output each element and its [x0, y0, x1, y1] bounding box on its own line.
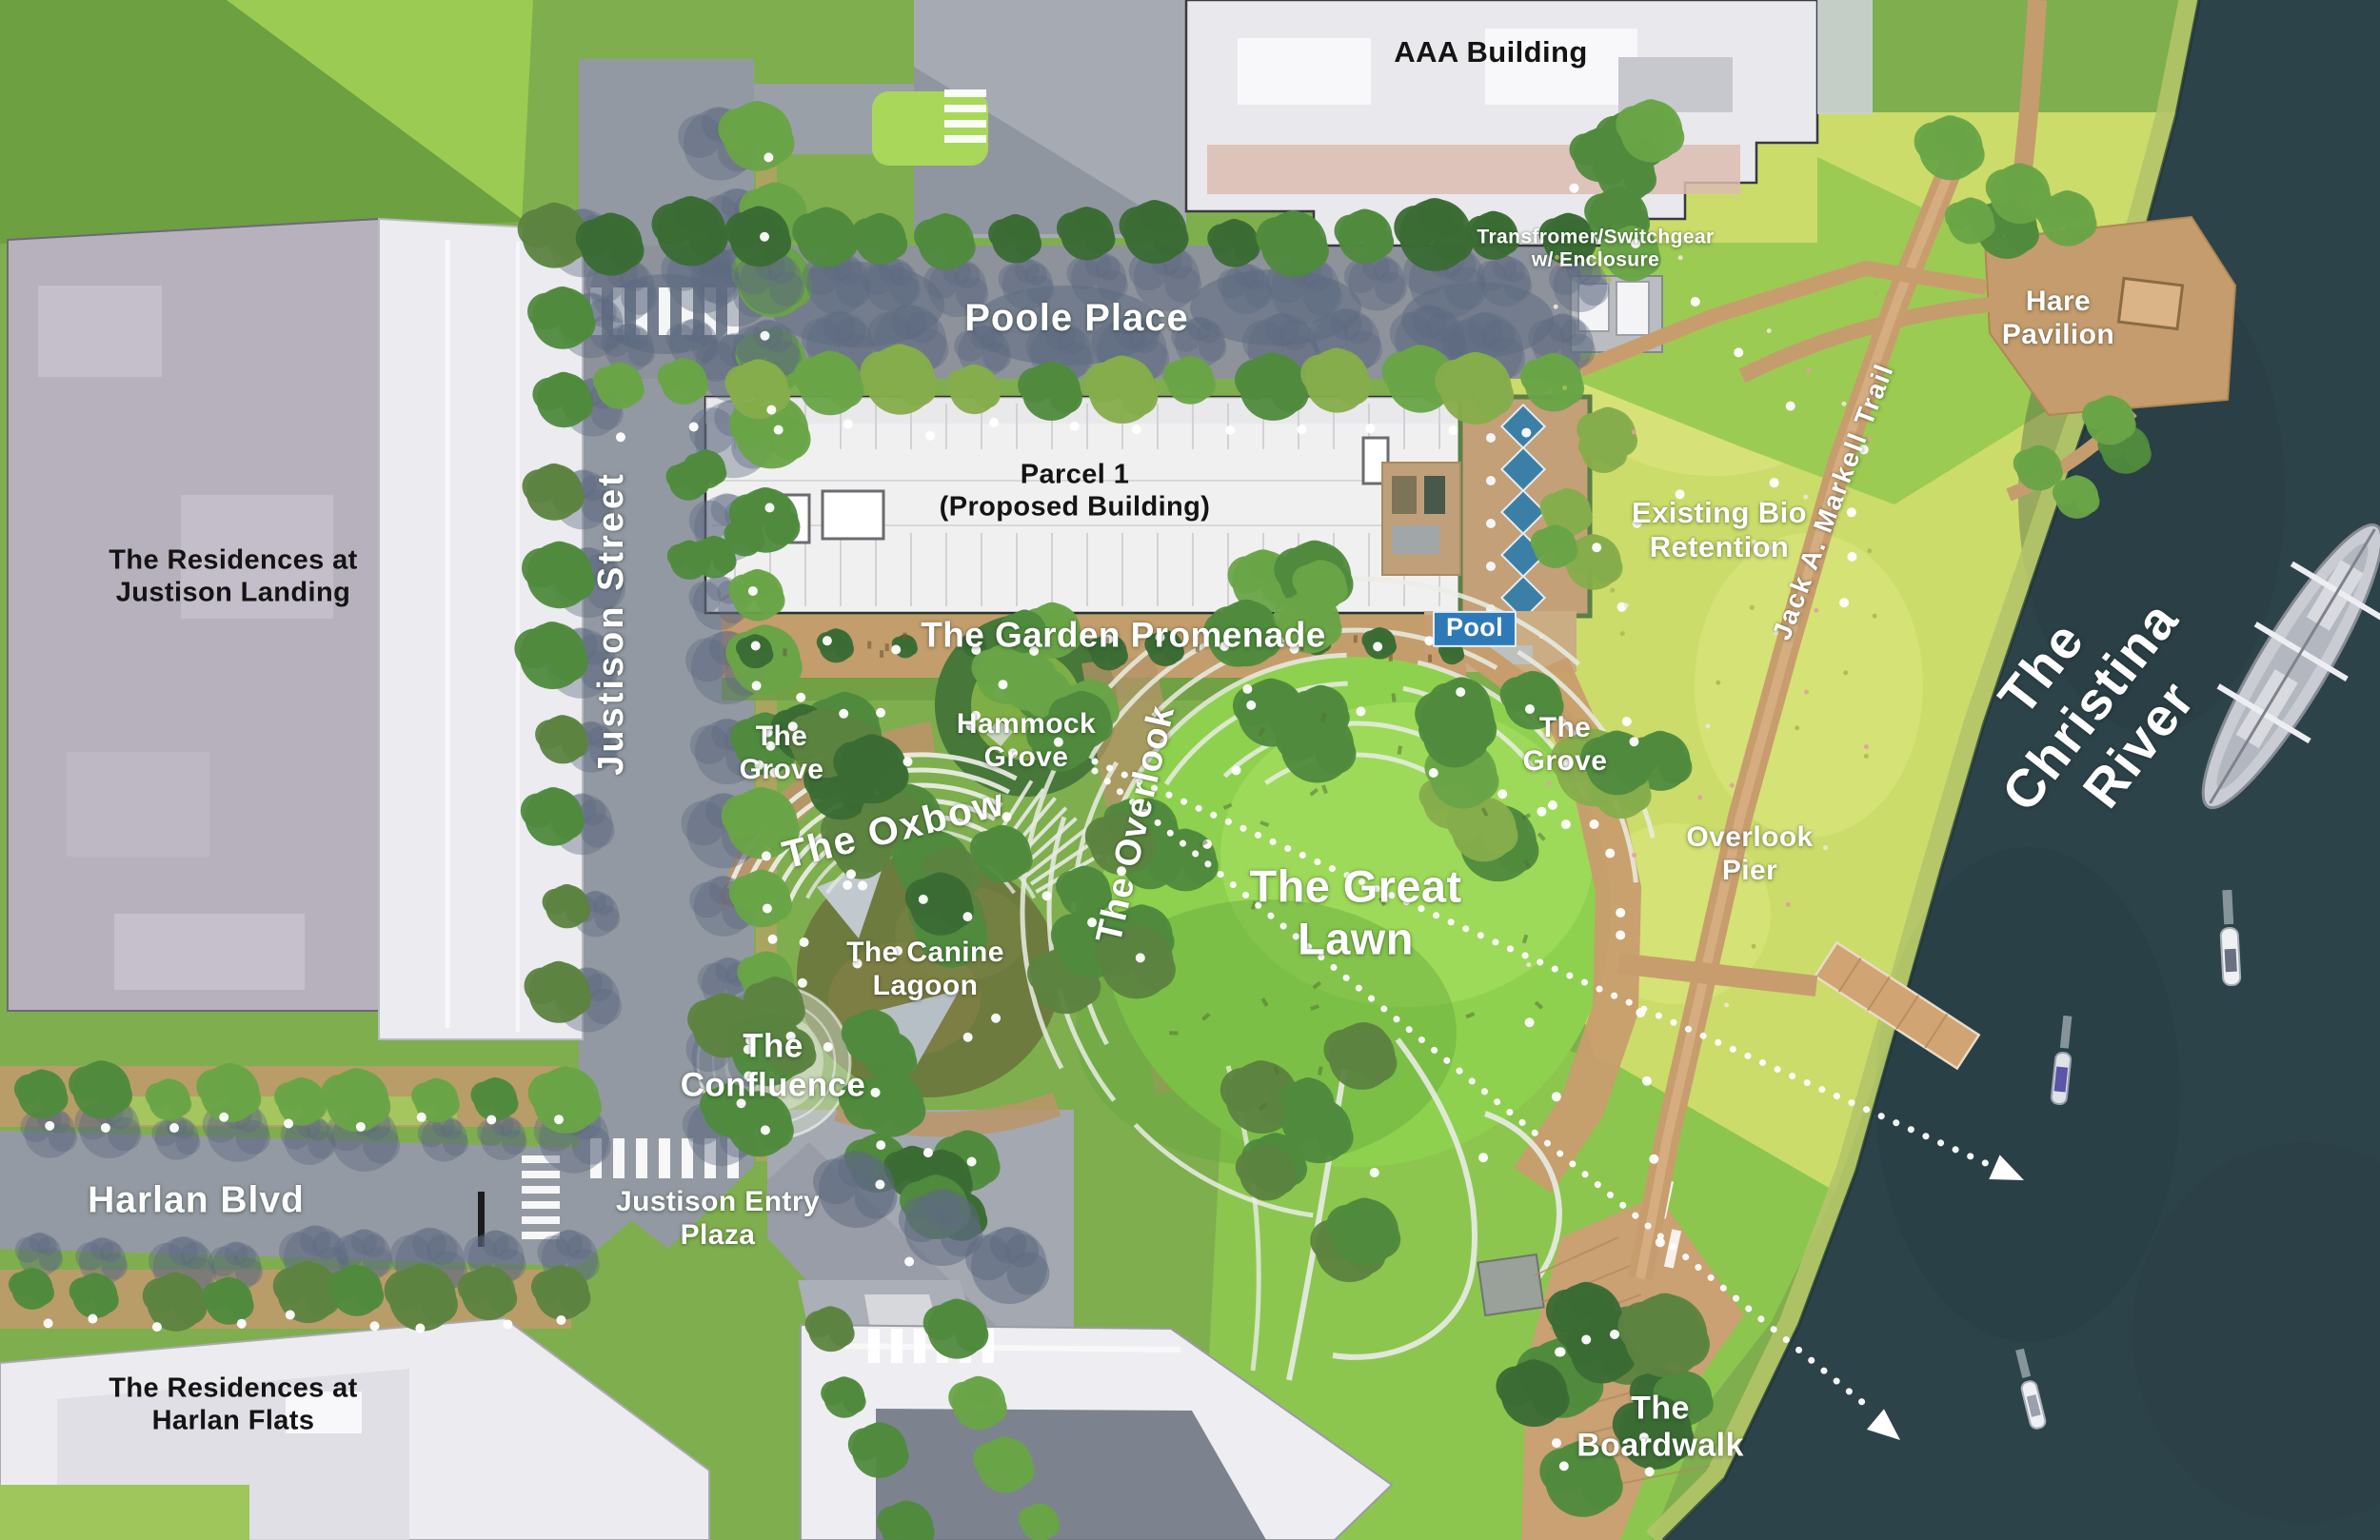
label-aaa-building: AAA Building [1394, 35, 1587, 69]
label-overlook: The Overlook [1088, 701, 1183, 947]
site-plan-map: AAA Building Transfromer/Switchgear w/ E… [0, 0, 2380, 1540]
label-hare-pavilion: Hare Pavilion [2002, 286, 2114, 352]
label-residences-justison-landing: The Residences at Justison Landing [109, 544, 357, 608]
label-justison-entry-plaza: Justison Entry Plaza [616, 1186, 820, 1253]
label-residences-harlan-flats: The Residences at Harlan Flats [109, 1372, 357, 1436]
label-pool: Pool [1433, 611, 1517, 647]
label-great-lawn: The Great Lawn [1250, 860, 1462, 964]
label-boardwalk: The Boardwalk [1577, 1391, 1744, 1466]
label-oxbow: The Oxbow [778, 780, 1009, 879]
label-parcel-1: Parcel 1 (Proposed Building) [940, 459, 1211, 523]
label-christina-river: The Christina River [1929, 535, 2253, 878]
label-poole-place: Poole Place [964, 296, 1189, 340]
label-confluence: The Confluence [681, 1027, 866, 1104]
label-transformer: Transfromer/Switchgear w/ Enclosure [1477, 227, 1714, 273]
label-garden-promenade: The Garden Promenade [921, 616, 1325, 657]
labels-layer: AAA Building Transfromer/Switchgear w/ E… [0, 0, 2380, 1540]
label-justison-street: Justison Street [590, 471, 632, 776]
label-existing-bio-retention: Existing Bio Retention [1632, 496, 1807, 564]
label-overlook-pier: Overlook Pier [1686, 821, 1813, 888]
label-harlan-blvd: Harlan Blvd [88, 1178, 305, 1221]
label-grove-west: The Grove [740, 721, 824, 787]
label-hammock-grove: Hammock Grove [957, 708, 1096, 775]
label-grove-east: The Grove [1523, 712, 1608, 779]
label-canine-lagoon: The Canine Lagoon [846, 937, 1004, 1003]
